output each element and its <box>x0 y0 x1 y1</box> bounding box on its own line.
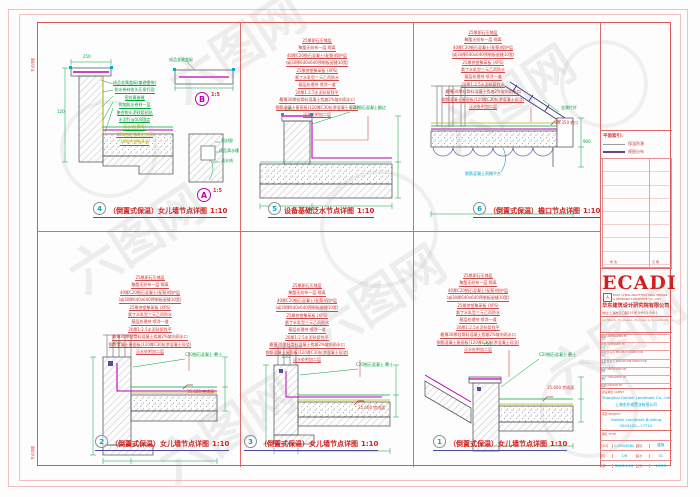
signature-fields: 审定 APPROVED BYTT 审核 CHECKED BYTT 项目负责人 P… <box>601 334 671 391</box>
company-tagline: Architects, Engineers, Planners & Consul… <box>602 318 675 322</box>
drawing-sheet: { "frame": {"margin_note": "节点详图"}, "wat… <box>0 0 700 495</box>
info-label: 比例 <box>637 464 650 468</box>
layer-line: 附加防水卷材一层 <box>119 102 151 108</box>
legend-label: 保温防潮 <box>628 141 644 147</box>
subdetail-callout-a: A 1:5 <box>197 188 222 202</box>
layer-list: 25厚卵石压铺层聚酯无纺布一层 隔离40厚C20细石混凝土(配筋)保护层(或30… <box>252 283 362 363</box>
annotation: 120 <box>57 110 65 115</box>
callout-circle-a: A <box>197 188 211 202</box>
layer-line: 最薄30厚轻骨料混凝土找坡2%坡向雨水口 <box>279 97 354 103</box>
layer-line: 聚酯无纺布一层 隔离 <box>464 37 501 43</box>
layer-line: 钢筋混凝土屋面板(120厚C30抗渗混凝土现浇) <box>266 350 349 356</box>
callout-circle-b: B <box>195 92 209 106</box>
layer-line: 20厚1:2.5水泥砂浆找平 <box>285 335 328 341</box>
subdetail-callout-b: B 1:5 <box>195 92 220 106</box>
revision-table <box>602 158 672 268</box>
detail-scale: 1:10 <box>212 441 229 448</box>
detail-title-5: 5 设备基础泛水节点详图 1:10 <box>268 202 374 218</box>
layer-line: 钢筋混凝土屋面板(120厚C30抗渗混凝土现浇) <box>109 342 192 348</box>
company-name-cn: 华东建筑设计研究院有限公司 <box>602 302 669 309</box>
layer-line: 20厚1:2.5水泥砂浆找平 <box>456 325 499 331</box>
layer-line: 聚酯无纺布一层 隔离 <box>288 290 325 296</box>
layer-line: 25厚卵石压铺层 <box>135 275 164 281</box>
annotation: C20细石混凝土翻边 <box>350 106 396 111</box>
detail-cell-4: 成品金属盖板(兼避雷带)防水卷材收头压条钉固密封膏嵌缝附加防水卷材一层聚合物水泥… <box>37 22 240 231</box>
annotation: C20细石混凝土 覆土 <box>539 353 585 358</box>
info-value: C-0904062 <box>613 444 637 448</box>
layer-line: 泛水处附加二层 <box>303 112 331 118</box>
info-value: 2004.1.10 <box>613 464 637 468</box>
client-name-cn: 上海金外滩置业有限公司 <box>602 402 670 408</box>
layer-line: 25厚挤塑聚苯板 (XPS) <box>462 60 503 66</box>
revision-note-right: 日 期 <box>652 260 659 264</box>
legend-title: 平面索引: <box>603 133 623 139</box>
field-signature: TT <box>601 347 671 351</box>
client-label: 建设单位 CLIENT <box>602 390 624 394</box>
layer-line: 40厚C20细石混凝土(配筋)保护层 <box>287 53 347 59</box>
layer-line: 最薄30厚轻骨料混凝土找坡2%坡向雨水口 <box>440 332 515 338</box>
layer-line: 聚酯无纺布一层 隔离 <box>131 282 168 288</box>
detail-title-6: 6 （倒置式保温）檐口节点详图 1:10 <box>473 202 600 218</box>
project-number: 2004102—17710 <box>602 423 670 428</box>
layer-line: (或30厚640x640预制板留缝10宽) <box>276 305 339 311</box>
layer-line: (或30厚640x640预制板留缝10宽) <box>452 52 515 58</box>
margin-note-top: 节点详图 <box>31 58 36 72</box>
annotation: 250 <box>483 343 491 348</box>
field-signature: TT <box>601 363 671 367</box>
field-signature: TT <box>601 379 671 383</box>
legend-line-thin <box>603 144 625 145</box>
layer-line: 20厚1:2.5水泥砂浆找平 <box>128 327 171 333</box>
annotation: 250 <box>282 355 290 360</box>
detail-scale: 1:10 <box>357 208 374 215</box>
layer-line: 基层处理剂 喷涂一道 <box>288 327 325 333</box>
layer-line: 氯丁水乳型三元乙丙防水 <box>128 312 172 318</box>
annotation: 250 <box>113 341 121 346</box>
info-label: 合同号 <box>600 444 613 448</box>
title-block: 平面索引: 保温防潮 视图分布 修 改 日 期 ECADI A EAST CHI… <box>600 22 672 467</box>
detail-title-4: 4 （倒置式保温）女儿墙节点详图 1:10 <box>93 202 227 218</box>
detail-title-3: 3 （倒置式保温）女儿墙节点详图 1:10 <box>244 435 378 451</box>
detail-title-text: （倒置式保温）檐口节点详图 <box>489 208 580 215</box>
annotation: 密封胶 <box>221 139 233 144</box>
annotation: 38.350 檐口 <box>555 121 578 126</box>
layer-list: 25厚卵石压铺层聚酯无纺布一层 隔离40厚C20细石混凝土(配筋)保护层(或30… <box>95 275 205 355</box>
detail-cell-5: 25厚卵石压铺层聚酯无纺布一层 隔离40厚C20细石混凝土(配筋)保护层(或30… <box>240 22 413 231</box>
layer-line: 40厚C20细石混凝土(配筋)保护层 <box>277 298 337 304</box>
field-signature: TT <box>601 355 671 359</box>
detail-title-1: 1 （倒置式保温）女儿墙节点详图 1:10 <box>433 435 567 451</box>
detail-title-2: 2 （倒置式保温）女儿墙节点详图 1:10 <box>95 435 229 451</box>
detail-cell-2: 25厚卵石压铺层聚酯无纺布一层 隔离40厚C20细石混凝土(配筋)保护层(或30… <box>37 231 240 467</box>
detail-scale: 1:10 <box>550 441 567 448</box>
layer-line: 钢筋混凝土屋面板(120厚C30抗渗混凝土现浇) <box>437 340 520 346</box>
layer-line: 泛水处附加二层 <box>293 357 321 363</box>
callout-scale-a: 1:5 <box>213 188 222 194</box>
layer-line: 水泥钉@500固定 <box>119 117 151 123</box>
info-label: 图别 <box>637 444 650 448</box>
field-signature: TT <box>601 371 671 375</box>
field-row: 项目负责人 PROJECT DIRECTORTT <box>601 350 671 358</box>
annotation: 120 <box>284 108 292 113</box>
info-label: 日期 <box>600 464 613 468</box>
layer-line: (或30厚640x640预制板留缝10宽) <box>119 297 182 303</box>
layer-line: 基层处理剂 喷涂一道 <box>459 317 496 323</box>
detail-cell-3: 25厚卵石压铺层聚酯无纺布一层 隔离40厚C20细石混凝土(配筋)保护层(或30… <box>240 231 413 467</box>
layer-line: 聚酯无纺布一层 隔离 <box>298 45 335 51</box>
annotation: 成品金属盖板 <box>169 58 193 63</box>
field-row: 审核 CHECKED BYTT <box>601 342 671 350</box>
layer-line: (或30厚640x640预制板留缝10宽) <box>286 60 349 66</box>
layer-line: 氯丁水乳型三元乙丙防水 <box>285 320 329 326</box>
layer-line: 滴水线(鹰嘴) <box>123 124 146 130</box>
margin-note-bottom: 节点详图 <box>31 446 36 460</box>
annotation: C20细石混凝土 覆土 <box>356 363 402 368</box>
layer-line: 基层处理剂 喷涂一道 <box>464 74 501 80</box>
detail-title-text: （倒置式保温）女儿墙节点详图 <box>260 441 358 448</box>
detail-title-text: （倒置式保温）女儿墙节点详图 <box>109 208 207 215</box>
layer-line: 25厚卵石压铺层 <box>292 283 321 289</box>
annotation: 35.600 完成面 <box>187 390 214 395</box>
drawing-title-label: 图名 TITLE <box>602 432 616 436</box>
info-label: 图号 <box>600 454 613 458</box>
layer-line: 25厚挤塑聚苯板 (XPS) <box>296 68 337 74</box>
detail-title-text: （倒置式保温）女儿墙节点详图 <box>111 441 209 448</box>
layer-line: 最薄30厚轻骨料混凝土找坡2%坡向雨水口 <box>445 89 520 95</box>
legend-line-thick <box>603 151 625 153</box>
layer-line: 泛水处附加二层 <box>469 104 497 110</box>
ecadi-emblem-icon: A <box>603 293 612 302</box>
layer-line: 泛水处附加二层 <box>136 349 164 355</box>
layer-line: 基层处理剂 喷涂一道 <box>131 319 168 325</box>
detail-number-badge: 1 <box>433 435 446 448</box>
annotation: 250 <box>83 55 91 60</box>
detail-cell-1: 25厚卵石压铺层聚酯无纺布一层 隔离40厚C20细石混凝土(配筋)保护层(或30… <box>413 231 600 467</box>
layer-line: 聚合物水泥砂浆粘贴 <box>117 110 153 116</box>
layer-list: 成品金属盖板(兼避雷带)防水卷材收头压条钉固密封膏嵌缝附加防水卷材一层聚合物水泥… <box>113 80 156 146</box>
annotation: 钢筋混凝土雨棚平台 <box>465 172 501 177</box>
annotation: 900 <box>583 140 591 145</box>
detail-number-badge: 6 <box>473 202 486 215</box>
layer-line: 基层处理剂 喷涂一道 <box>298 82 335 88</box>
detail-number-badge: 5 <box>268 202 281 215</box>
info-grid-row: 合同号 C-0904062 图别 建施 <box>600 440 672 450</box>
callout-scale-b: 1:5 <box>211 92 220 98</box>
info-grid-row: 图号 1/6 版次 01 <box>600 450 672 460</box>
detail-scale: 1:10 <box>583 208 600 215</box>
legend-item-1: 保温防潮 <box>603 141 644 147</box>
layer-line: 20厚1:2.5水泥砂浆找平 <box>295 90 338 96</box>
layer-line: 25厚挤塑聚苯板 (XPS) <box>286 313 327 319</box>
layer-line: 最薄30厚轻骨料混凝土找坡2%坡向雨水口 <box>269 342 344 348</box>
ecadi-logo: ECADI <box>602 272 677 294</box>
client-name-en: Shanghai Golden Landmark Co., Ltd <box>602 395 670 400</box>
layer-line: 25厚挤塑聚苯板 (XPS) <box>129 305 170 311</box>
detail-number-badge: 4 <box>93 202 106 215</box>
project-name-en: Golden Landmark Building <box>602 417 670 422</box>
detail-scale: 1:10 <box>210 208 227 215</box>
layer-line: (或30厚640x640预制板留缝10宽) <box>447 295 510 301</box>
detail-number-badge: 2 <box>95 435 108 448</box>
layer-line: 成品金属盖板(兼避雷带) <box>113 80 156 86</box>
field-row: 审定 APPROVED BYTT <box>601 334 671 342</box>
project-label: 项目 PROJECT <box>602 412 621 416</box>
info-value: 1/6 <box>613 454 637 458</box>
layer-line: 30厚挤塑聚苯板 <box>120 139 149 145</box>
legend-item-2: 视图分布 <box>603 149 644 155</box>
layer-line: 钢筋混凝土屋面板(120厚C30抗渗混凝土现浇) <box>442 97 525 103</box>
layer-line: C20细石混凝土压顶 <box>117 132 153 138</box>
detail-cell-6: 25厚卵石压铺层聚酯无纺布一层 隔离40厚C20细石混凝土(配筋)保护层(或30… <box>413 22 600 231</box>
legend-label: 视图分布 <box>628 149 644 155</box>
revision-note-left: 修 改 <box>610 260 617 264</box>
info-grid-row: 日期 2004.1.10 比例 04.25 <box>600 460 672 470</box>
layer-line: 40厚C20细石混凝土(配筋)保护层 <box>453 45 513 51</box>
info-value: 建施 <box>650 443 673 448</box>
layer-line: 25厚卵石压铺层 <box>302 38 331 44</box>
info-value: 04.25 <box>650 464 673 468</box>
layer-line: 防水卷材收头压条钉固 <box>115 87 155 93</box>
ecadi-subtitle-2: & RESEARCH INSTITUTE CO., LTD. <box>613 297 662 301</box>
field-signature: TT <box>601 338 671 342</box>
layer-line: 氯丁水乳型三元乙丙防水 <box>461 67 505 73</box>
field-row: 专业负责人 DISCIPLINE DIRECTORTT <box>601 359 671 367</box>
detail-scale: 1:10 <box>361 441 378 448</box>
annotation: 滴水线 <box>221 159 233 164</box>
layer-line: 最薄30厚轻骨料混凝土找坡2%坡向雨水口 <box>112 334 187 340</box>
annotation: 35.600 完成面 <box>547 386 574 391</box>
layer-line: 25厚卵石压铺层 <box>463 273 492 279</box>
layer-list: 25厚卵石压铺层聚酯无纺布一层 隔离40厚C20细石混凝土(配筋)保护层(或30… <box>423 273 533 353</box>
detail-title-text: 设备基础泛水节点详图 <box>284 208 354 215</box>
layer-line: 40厚C20细石混凝土(配筋)保护层 <box>448 288 508 294</box>
layer-line: 25厚挤塑聚苯板 (XPS) <box>457 303 498 309</box>
annotation: 成品滴水槽 <box>219 149 239 154</box>
layer-line: 氯丁水乳型三元乙丙防水 <box>456 310 500 316</box>
annotation: 金属栏杆 <box>561 106 577 111</box>
detail-number-badge: 3 <box>244 435 257 448</box>
annotation: 35.600 完成面 <box>358 406 385 411</box>
layer-line: 密封膏嵌缝 <box>125 95 145 101</box>
layer-line: 泛水处附加二层 <box>464 347 492 353</box>
layer-line: 氯丁水乳型三元乙丙防水 <box>295 75 339 81</box>
layer-list: 25厚卵石压铺层聚酯无纺布一层 隔离40厚C20细石混凝土(配筋)保护层(或30… <box>428 30 538 110</box>
layer-line: 20厚1:2.5水泥砂浆找平 <box>461 82 504 88</box>
layer-line: 聚酯无纺布一层 隔离 <box>459 280 496 286</box>
layer-line: 25厚卵石压铺层 <box>468 30 497 36</box>
company-address: 地址:上海市汉口路151号 0·6·0·1·0·8·1 <box>602 310 657 315</box>
info-grid: 合同号 C-0904062 图别 建施 图号 1/6 版次 01 日期 2004… <box>600 440 672 470</box>
field-row: 校对 REVIEWED BYTT <box>601 367 671 375</box>
layer-line: 40厚C20细石混凝土(配筋)保护层 <box>120 290 180 296</box>
info-value: 01 <box>650 454 673 458</box>
detail-title-text: （倒置式保温）女儿墙节点详图 <box>449 441 547 448</box>
annotation: C20细石混凝土 覆土 <box>185 353 231 358</box>
field-row: 设计 DESIGNED BYTT <box>601 375 671 383</box>
info-label: 版次 <box>637 454 650 458</box>
